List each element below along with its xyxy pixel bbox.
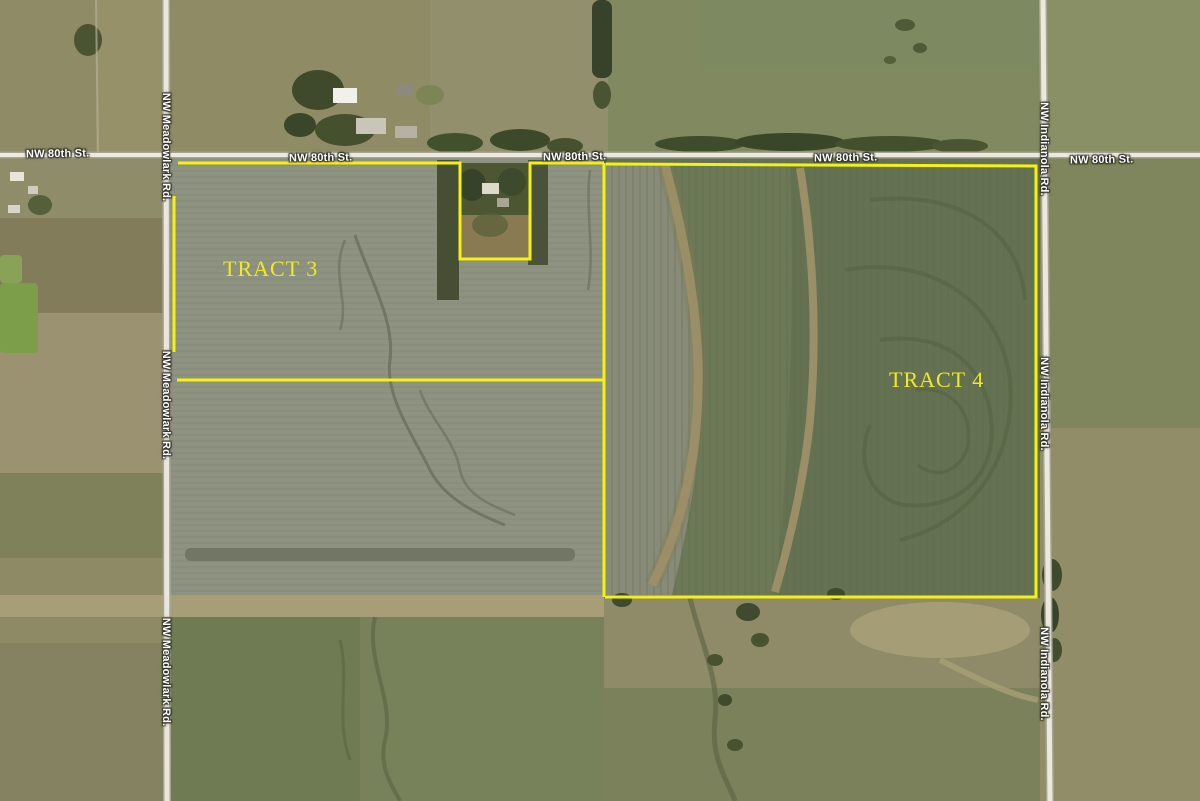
satellite-map-view[interactable]: NW 80th St. NW 80th St. NW 80th St. NW 8…	[0, 0, 1200, 801]
field-parcels	[0, 0, 1200, 801]
map-imagery	[0, 0, 1200, 801]
